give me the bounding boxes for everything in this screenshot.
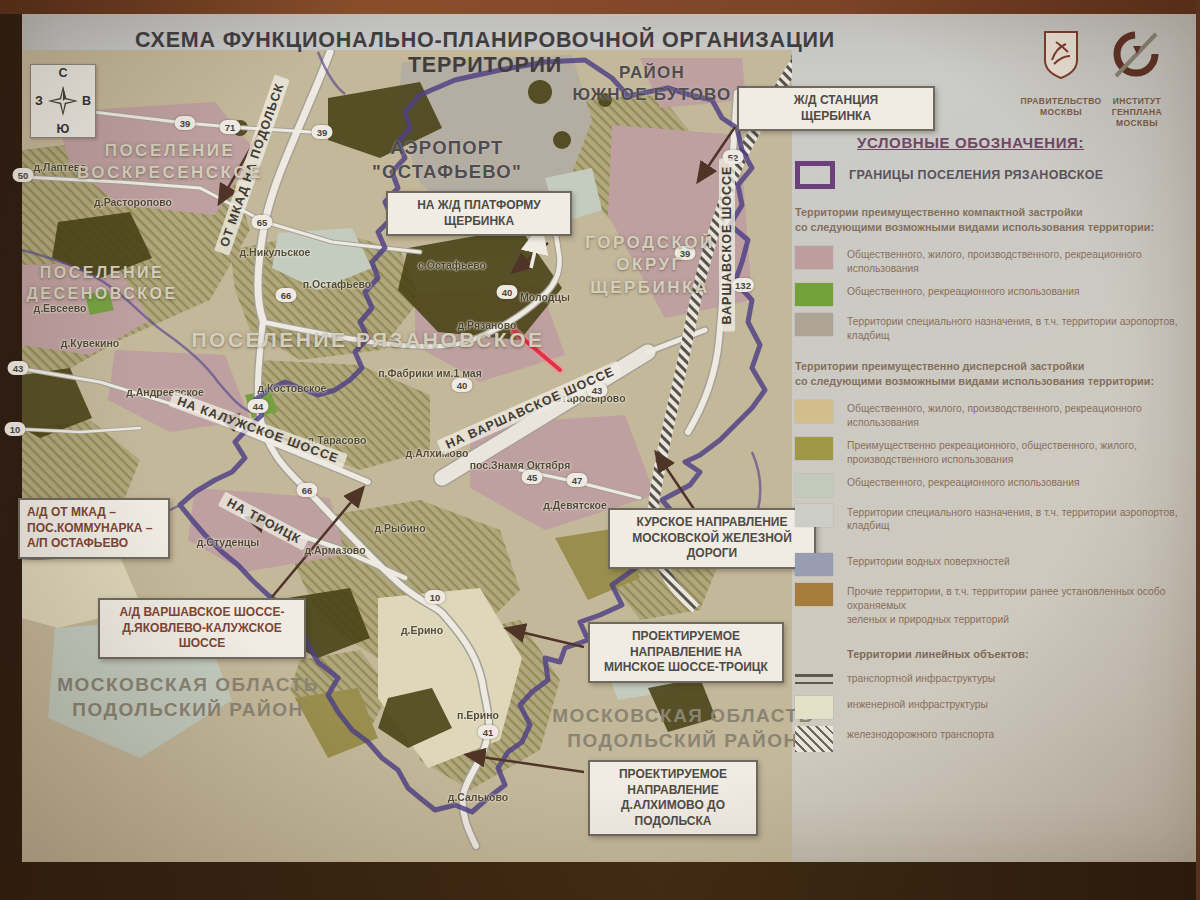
legend-item-row: Территории водных поверхностей	[795, 553, 1199, 576]
legend-item-label: инженерной инфраструктуры	[847, 696, 988, 712]
legend-item-label: Территории водных поверхностей	[847, 553, 1010, 569]
logo-caption-line: МОСКВЫ	[1102, 118, 1172, 129]
legend-item-label: Общественного, рекреационного использова…	[847, 474, 1080, 490]
map-legend: УСЛОВНЫЕ ОБОЗНАЧЕНИЯ: ГРАНИЦЫ ПОСЕЛЕНИЯ …	[795, 134, 1199, 759]
compass-star-icon	[48, 86, 78, 116]
legend-color-swatch	[795, 437, 833, 460]
legend-color-swatch	[795, 553, 833, 576]
legend-label-line: производственного использования	[847, 453, 1137, 467]
compass-west-label: З	[35, 94, 43, 108]
logo-caption-line: МОСКВЫ	[1008, 107, 1114, 118]
legend-boundary-row: ГРАНИЦЫ ПОСЕЛЕНИЯ РЯЗАНОВСКОЕ	[795, 161, 1199, 189]
moscow-government-logo-caption: ПРАВИТЕЛЬСТВОМОСКВЫ	[1008, 96, 1114, 118]
legend-item-row: Преимущественно рекреационного, обществе…	[795, 437, 1199, 467]
legend-label-line: Территории специального назначения, в т.…	[847, 506, 1199, 534]
legend-item-row: транспортной инфраструктуры	[795, 670, 1199, 689]
legend-color-swatch	[795, 696, 833, 719]
legend-body: Территории преимущественно компактной за…	[795, 205, 1199, 752]
legend-item-label: Территории специального назначения, в т.…	[847, 313, 1199, 343]
linear-objects-header: Территории линейных объектов:	[847, 647, 1199, 662]
legend-section-header: Территории преимущественно дисперсной за…	[795, 359, 1199, 389]
legend-item-label: Общественного, жилого, производственного…	[847, 246, 1199, 276]
logo-caption-line: ИНСТИТУТ	[1102, 96, 1172, 107]
legend-label-line: Общественного, рекреационного использова…	[847, 476, 1080, 490]
photo-of-projected-slide: д.Лаптевод.Растороповод.Евсеевод.Кувекин…	[0, 0, 1200, 900]
compass-south-label: Ю	[57, 122, 70, 136]
legend-color-swatch	[795, 583, 833, 606]
legend-color-swatch	[795, 400, 833, 423]
legend-item-label: Общественного, рекреационного использова…	[847, 283, 1080, 299]
legend-color-swatch	[795, 504, 833, 527]
legend-label-line: транспортной инфраструктуры	[847, 672, 995, 686]
legend-section-header: Территории преимущественно компактной за…	[795, 205, 1199, 235]
genplan-institute-logo-caption: ИНСТИТУТГЕНПЛАНАМОСКВЫ	[1102, 96, 1172, 129]
logo-caption-line: ГЕНПЛАНА	[1102, 107, 1172, 118]
photo-edge-bottom	[0, 862, 1200, 900]
compass-east-label: В	[82, 94, 91, 108]
photo-edge-right	[1196, 0, 1200, 900]
legend-item-row: Общественного, жилого, производственного…	[795, 246, 1199, 276]
legend-label-line: зеленых и природных территорий	[847, 613, 1199, 627]
legend-header-line: Территории преимущественно компактной за…	[795, 205, 1199, 220]
legend-label-line: Общественного, жилого, производственного…	[847, 248, 1199, 276]
legend-item-label: Территории специального назначения, в т.…	[847, 504, 1199, 534]
legend-item-row: Общественного, рекреационного использова…	[795, 283, 1199, 306]
legend-item-label: Преимущественно рекреационного, обществе…	[847, 437, 1137, 467]
legend-item-row: железнодорожного транспорта	[795, 726, 1199, 752]
boundary-label: ГРАНИЦЫ ПОСЕЛЕНИЯ РЯЗАНОВСКОЕ	[849, 161, 1103, 184]
legend-item-label: транспортной инфраструктуры	[847, 670, 995, 686]
legend-item-row: Территории специального назначения, в т.…	[795, 504, 1199, 534]
legend-item-row: Общественного, рекреационного использова…	[795, 474, 1199, 497]
legend-title: УСЛОВНЫЕ ОБОЗНАЧЕНИЯ:	[857, 134, 1199, 151]
moscow-coat-of-arms-icon	[1042, 30, 1080, 80]
legend-label-line: Территории водных поверхностей	[847, 555, 1010, 569]
legend-label-line: Преимущественно рекреационного, обществе…	[847, 439, 1137, 453]
compass-north-label: С	[58, 66, 67, 80]
photo-edge-top	[0, 0, 1200, 14]
legend-label-line: инженерной инфраструктуры	[847, 698, 988, 712]
legend-item-label: Общественного, жилого, производственного…	[847, 400, 1199, 430]
railway-hatch-swatch	[795, 726, 833, 752]
legend-item-row: Прочие территории, в т.ч. территории ран…	[795, 583, 1199, 627]
legend-label-line: Территории специального назначения, в т.…	[847, 315, 1199, 343]
legend-label-line: Общественного, рекреационного использова…	[847, 285, 1080, 299]
legend-header-line: Территории преимущественно дисперсной за…	[795, 359, 1199, 374]
legend-item-row: инженерной инфраструктуры	[795, 696, 1199, 719]
territory-map	[22, 50, 792, 862]
legend-item-label: железнодорожного транспорта	[847, 726, 994, 742]
legend-label-line: железнодорожного транспорта	[847, 728, 994, 742]
compass-rose: С Ю З В	[30, 64, 96, 138]
legend-item-row: Территории специального назначения, в т.…	[795, 313, 1199, 343]
legend-label-line: Прочие территории, в т.ч. территории ран…	[847, 585, 1199, 613]
legend-item-row: Общественного, жилого, производственного…	[795, 400, 1199, 430]
legend-color-swatch	[795, 474, 833, 497]
legend-label-line: Общественного, жилого, производственного…	[847, 402, 1199, 430]
boundary-swatch	[795, 161, 835, 189]
legend-header-line: со следующими возможными видами использо…	[795, 220, 1199, 235]
transport-lines-symbol	[795, 670, 833, 689]
legend-color-swatch	[795, 283, 833, 306]
logo-caption-line: ПРАВИТЕЛЬСТВО	[1008, 96, 1114, 107]
legend-item-label: Прочие территории, в т.ч. территории ран…	[847, 583, 1199, 627]
legend-header-line: со следующими возможными видами использо…	[795, 374, 1199, 389]
page-title: СХЕМА ФУНКЦИОНАЛЬНО-ПЛАНИРОВОЧНОЙ ОРГАНИ…	[60, 28, 910, 78]
genplan-institute-logo-icon	[1108, 26, 1164, 82]
photo-edge-left	[0, 0, 22, 900]
legend-color-swatch	[795, 246, 833, 269]
legend-color-swatch	[795, 313, 833, 336]
